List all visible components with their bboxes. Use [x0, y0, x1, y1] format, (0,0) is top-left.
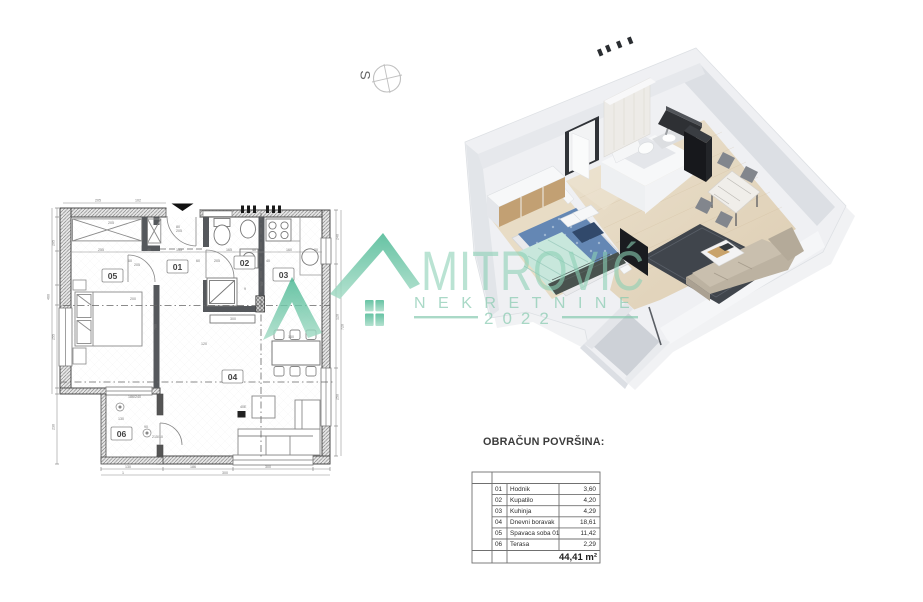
svg-text:60: 60 — [196, 259, 200, 263]
svg-text:05: 05 — [108, 271, 118, 281]
svg-text:160: 160 — [286, 248, 292, 252]
svg-text:Terasa: Terasa — [510, 541, 530, 548]
svg-text:3,60: 3,60 — [584, 486, 597, 493]
svg-text:03: 03 — [279, 270, 289, 280]
svg-text:40: 40 — [252, 248, 256, 252]
svg-text:04: 04 — [495, 519, 503, 526]
svg-text:05: 05 — [495, 530, 503, 537]
svg-text:11,42: 11,42 — [580, 530, 596, 537]
svg-text:01: 01 — [495, 486, 503, 493]
svg-text:02: 02 — [240, 258, 250, 268]
svg-text:230: 230 — [52, 424, 56, 430]
svg-text:255: 255 — [52, 334, 56, 340]
svg-text:720: 720 — [341, 324, 345, 330]
svg-text:OBRAČUN POVRŠINA:: OBRAČUN POVRŠINA: — [483, 435, 605, 448]
svg-text:2022: 2022 — [484, 309, 558, 328]
svg-text:250: 250 — [336, 394, 340, 400]
svg-text:Kupatilo: Kupatilo — [510, 497, 534, 504]
svg-text:240: 240 — [336, 234, 340, 240]
svg-text:135: 135 — [176, 248, 182, 252]
svg-text:04: 04 — [228, 372, 238, 382]
svg-text:Hodnik: Hodnik — [510, 486, 531, 493]
svg-text:1: 1 — [122, 471, 124, 475]
svg-text:700: 700 — [154, 324, 158, 330]
svg-text:102: 102 — [135, 199, 141, 203]
svg-text:4,29: 4,29 — [584, 508, 597, 515]
svg-text:02: 02 — [495, 497, 503, 504]
svg-text:Dnevni boravak: Dnevni boravak — [510, 519, 555, 526]
svg-text:90: 90 — [144, 425, 148, 429]
svg-text:18,61: 18,61 — [580, 519, 596, 526]
svg-text:2,29: 2,29 — [584, 541, 597, 548]
svg-text:300: 300 — [265, 465, 271, 469]
svg-text:205: 205 — [134, 263, 140, 267]
svg-text:205: 205 — [214, 259, 220, 263]
svg-text:205: 205 — [52, 240, 56, 246]
svg-text:300: 300 — [230, 317, 236, 321]
svg-text:4,20: 4,20 — [584, 497, 597, 504]
svg-text:03: 03 — [495, 508, 503, 515]
svg-text:20: 20 — [314, 248, 318, 252]
svg-text:MITROVIĆ: MITROVIĆ — [421, 239, 645, 302]
svg-text:S: S — [357, 70, 373, 79]
svg-text:205: 205 — [176, 229, 182, 233]
svg-text:200: 200 — [130, 297, 136, 301]
svg-text:40: 40 — [147, 248, 151, 252]
svg-text:160: 160 — [288, 335, 294, 339]
svg-text:460: 460 — [47, 294, 51, 300]
svg-text:255: 255 — [98, 248, 104, 252]
svg-text:Spavaca soba 01: Spavaca soba 01 — [510, 530, 560, 537]
svg-text:300: 300 — [222, 471, 228, 475]
svg-text:205: 205 — [95, 199, 101, 203]
svg-text:01: 01 — [173, 262, 183, 272]
svg-text:186: 186 — [190, 465, 196, 469]
svg-text:06: 06 — [495, 541, 503, 548]
svg-text:120: 120 — [336, 314, 340, 320]
svg-text:120: 120 — [201, 342, 207, 346]
svg-text:130: 130 — [125, 465, 131, 469]
svg-text:44,41 m²: 44,41 m² — [559, 552, 597, 563]
svg-text:9: 9 — [244, 287, 246, 291]
svg-text:40E: 40E — [240, 405, 247, 409]
svg-text:130: 130 — [118, 417, 124, 421]
svg-text:06: 06 — [117, 429, 127, 439]
svg-text:205: 205 — [108, 221, 114, 225]
svg-text:Kuhinja: Kuhinja — [510, 508, 532, 515]
svg-text:40: 40 — [266, 259, 270, 263]
svg-text:186/240: 186/240 — [128, 395, 141, 399]
svg-text:165: 165 — [226, 248, 232, 252]
svg-text:215/10: 215/10 — [152, 435, 163, 439]
svg-text:60: 60 — [128, 259, 132, 263]
svg-text:90: 90 — [260, 282, 264, 286]
